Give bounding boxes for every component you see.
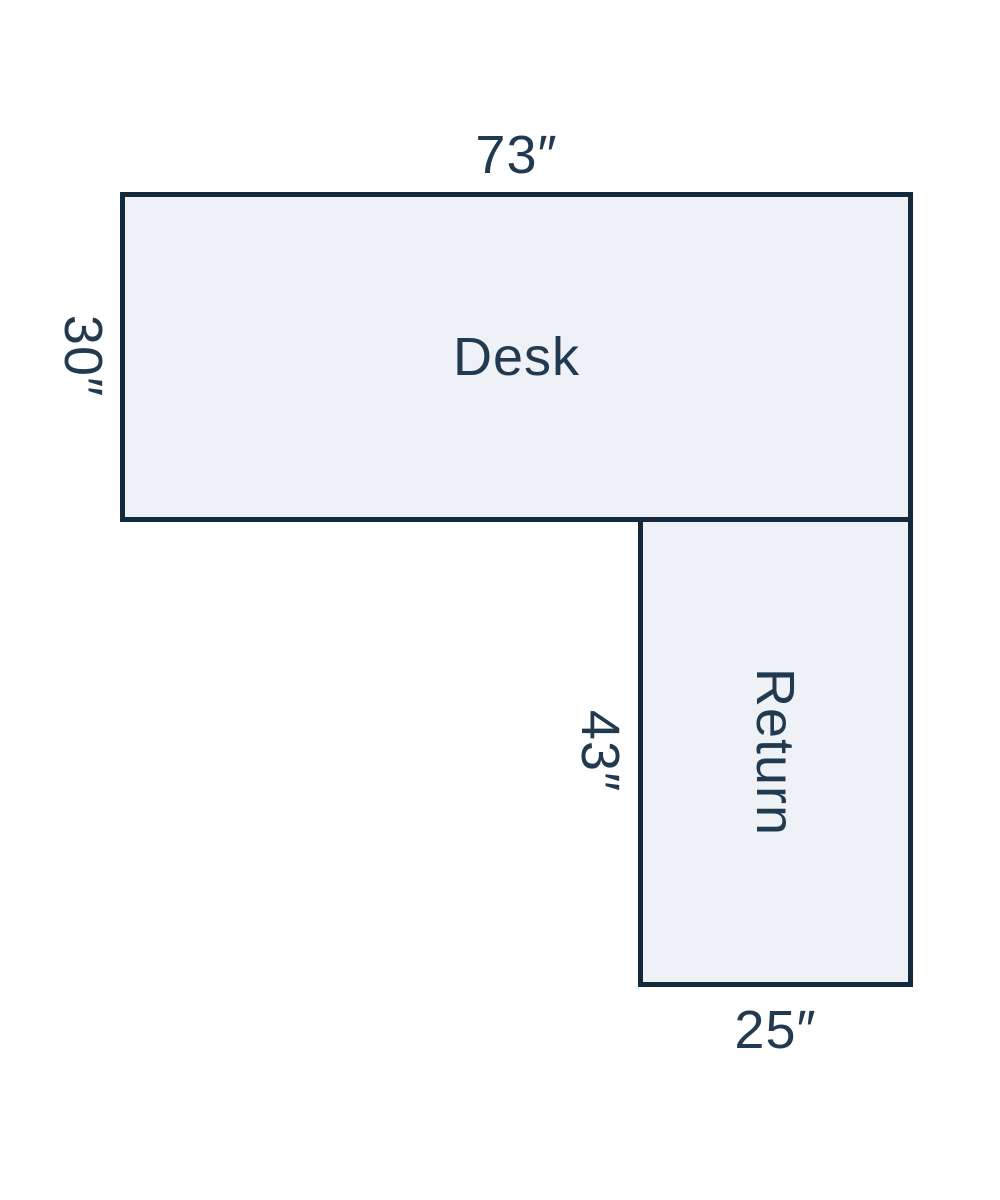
return-length-dimension: 43″ [569, 710, 631, 792]
desk-label: Desk [453, 326, 580, 388]
desk-width-dimension: 73″ [120, 124, 913, 186]
return-shape: Return [638, 522, 913, 987]
desk-shape: Desk [120, 192, 913, 522]
return-width-dimension: 25″ [638, 999, 913, 1061]
desk-dimension-diagram: Desk Return 73″ 30″ 43″ 25″ [0, 0, 1000, 1200]
return-label: Return [745, 668, 807, 836]
desk-depth-dimension: 30″ [52, 315, 114, 397]
